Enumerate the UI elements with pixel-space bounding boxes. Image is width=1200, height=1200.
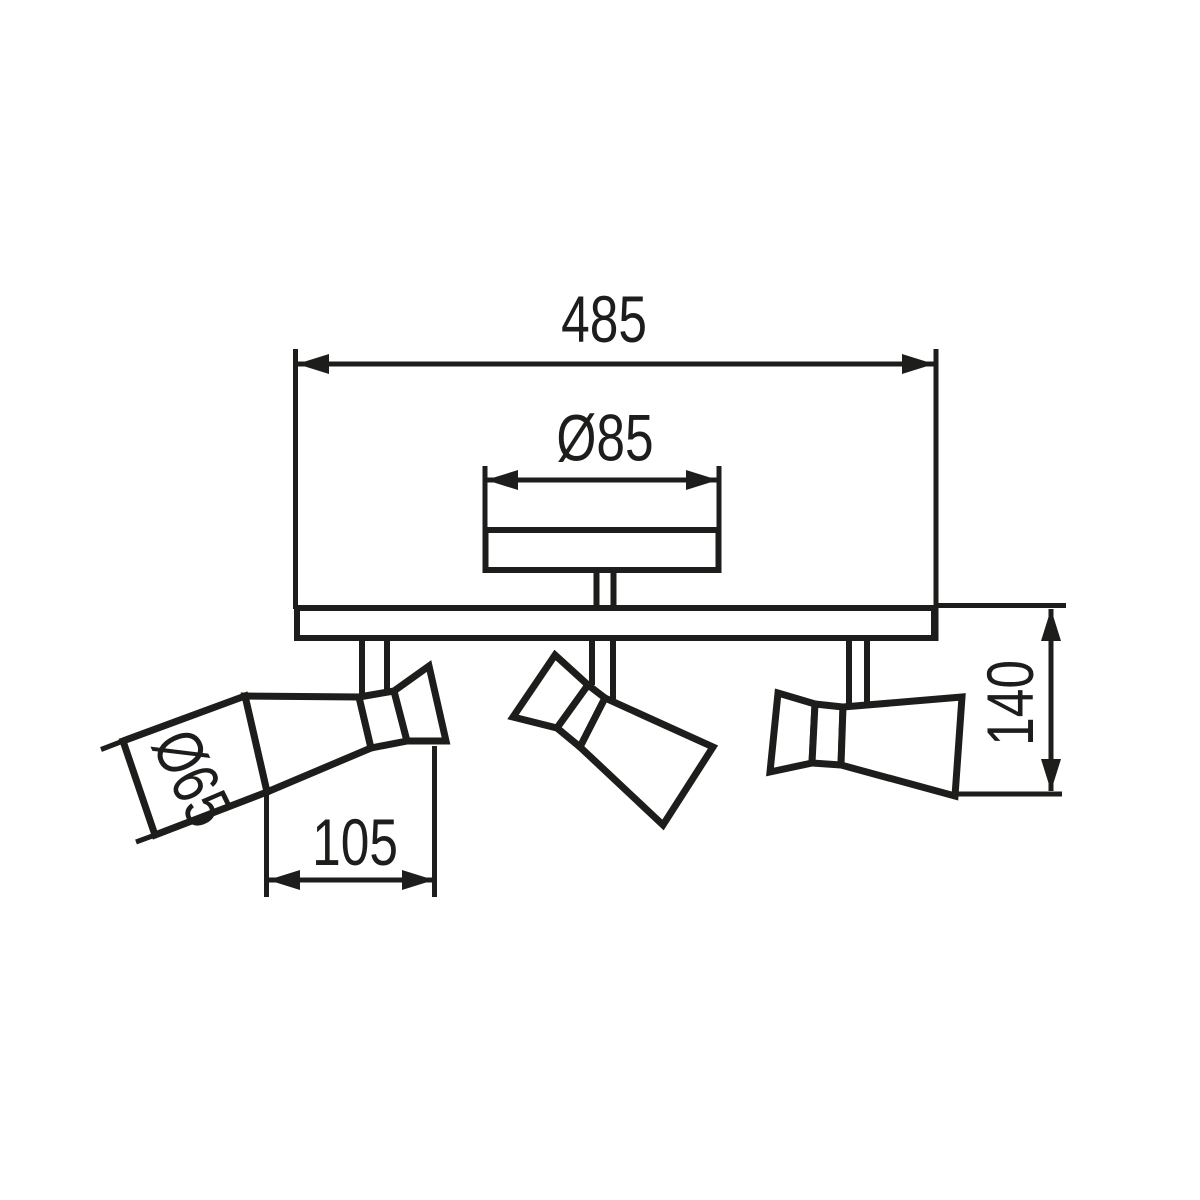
arrowhead-canopy-left <box>486 470 518 490</box>
ceiling-bar <box>297 608 934 638</box>
canopy <box>486 530 719 570</box>
arrowhead-total-width-left <box>297 354 329 374</box>
spotlight-right-horn <box>841 697 962 796</box>
dim-label-total-width: 485 <box>561 282 647 357</box>
arrowhead-total-width-right <box>902 354 934 374</box>
dim-label-head-length: 105 <box>312 805 398 880</box>
dim-label-fixture-height: 140 <box>973 660 1048 746</box>
dim-label-canopy-diameter: Ø85 <box>556 400 653 475</box>
luminaire-dimension-drawing: 485 Ø85 105 140 Ø65 <box>0 0 1200 1200</box>
dimension-drawing-page: 485 Ø85 105 140 Ø65 <box>0 0 1200 1200</box>
arrowhead-height-top <box>1041 609 1061 641</box>
spotlight-left-back-cone <box>394 666 446 741</box>
stroke-group: 485 Ø85 105 140 Ø65 <box>101 282 1066 897</box>
fill-group: 485 Ø85 105 140 Ø65 <box>101 282 1066 897</box>
arrowhead-canopy-right <box>686 470 718 490</box>
arrowhead-height-bottom <box>1041 759 1061 791</box>
arrowhead-head-length-right <box>402 870 434 890</box>
arrowhead-head-length-left <box>268 870 300 890</box>
extension-line-head-diameter-top <box>101 741 123 750</box>
spotlight-middle-horn <box>580 698 713 825</box>
spotlight-right-back-cone <box>770 693 815 772</box>
